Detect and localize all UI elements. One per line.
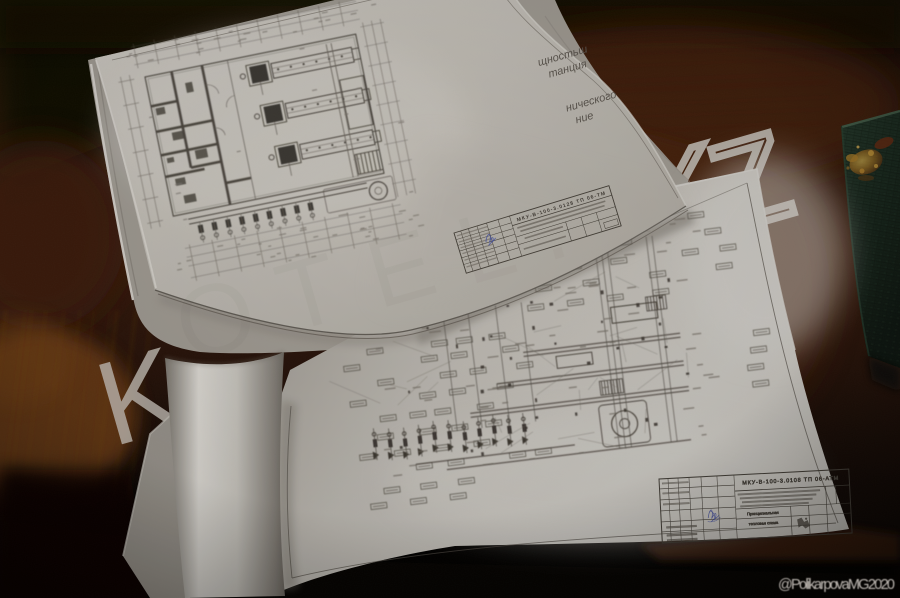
- svg-text:@PolikarpovaMG2020: @PolikarpovaMG2020: [778, 577, 895, 593]
